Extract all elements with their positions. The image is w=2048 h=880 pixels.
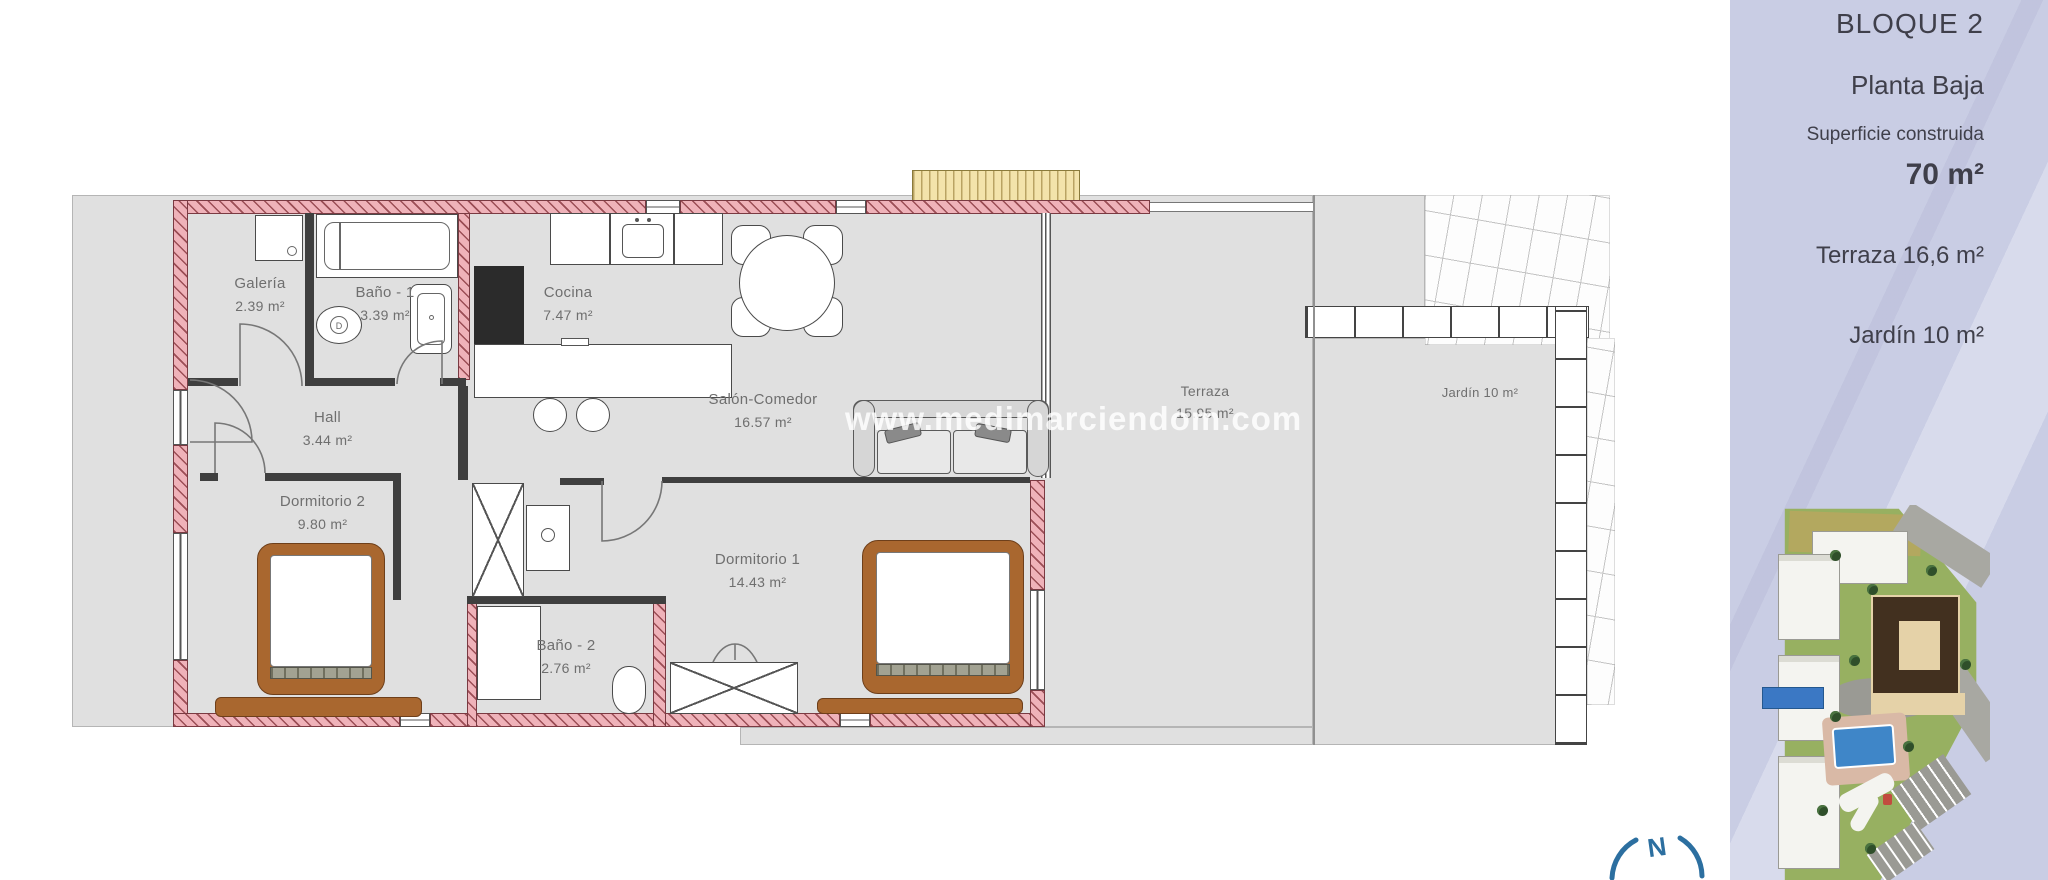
- block-title: BLOQUE 2: [1836, 8, 1984, 40]
- floorplan-page: D: [0, 0, 2048, 880]
- wall-right: [1030, 480, 1045, 590]
- wall-top: [866, 200, 1150, 214]
- wall-bottom: [870, 713, 1045, 727]
- wall-left: [173, 445, 188, 533]
- watermark: www.medimarciendom.com: [845, 400, 1302, 438]
- room-label-dorm2: Dormitorio 29.80 m²: [255, 490, 390, 537]
- bed-bench-dorm1: [817, 698, 1023, 714]
- stool: [533, 398, 567, 432]
- terrace-area-value: Terraza 16,6 m²: [1816, 242, 1984, 270]
- wardrobe: [472, 483, 524, 597]
- kitchen-counter: [674, 213, 723, 265]
- dresser-dorm1: [670, 662, 798, 714]
- room-label-galeria: Galería2.39 m²: [210, 272, 310, 319]
- wall-bath1-bottom: [440, 378, 466, 386]
- room-label-bano1: Baño - 13.39 m²: [335, 281, 435, 328]
- garden-fence-right: [1555, 306, 1587, 745]
- built-area-label: Superficie construida: [1807, 124, 1984, 146]
- palm-tree: [1849, 655, 1860, 666]
- room-label-salon: Salón-Comedor16.57 m²: [688, 388, 838, 435]
- site-deck: [1871, 693, 1964, 716]
- room-label-bano2: Baño - 22.76 m²: [518, 634, 614, 681]
- svg-text:N: N: [1645, 831, 1668, 863]
- partition-bath1-kitchen: [458, 213, 470, 380]
- floor-title: Planta Baja: [1851, 70, 1984, 101]
- terrace-top-rail: [1150, 202, 1313, 212]
- window-left: [173, 533, 188, 660]
- room-label-dorm1: Dormitorio 114.43 m²: [690, 548, 825, 595]
- bathtub: [316, 214, 458, 278]
- boiler-cabinet: [526, 505, 570, 571]
- mattress-dorm2: [270, 555, 372, 667]
- bed-base-dorm2: [270, 667, 372, 679]
- stool: [576, 398, 610, 432]
- window-bottom-2: [840, 713, 870, 727]
- room-label-jardin: Jardín 10 m²: [1405, 383, 1555, 403]
- wall-dorm2-top: [200, 473, 218, 481]
- washing-machine: [255, 215, 303, 261]
- toilet-bath2: [612, 666, 646, 714]
- wall-bath1-bottom: [305, 378, 395, 386]
- wall-right: [1030, 690, 1045, 727]
- terrace-awning: [912, 170, 1080, 202]
- wall-hall-right: [458, 386, 468, 480]
- palm-tree: [1867, 584, 1878, 595]
- unit-location-marker: [1762, 687, 1824, 710]
- site-building-left-1: [1778, 554, 1840, 640]
- wall-bath2-top: [467, 596, 666, 604]
- wall-left: [173, 200, 188, 390]
- palm-tree: [1817, 805, 1828, 816]
- partition-bath2-left: [467, 596, 477, 727]
- room-label-hall: Hall3.44 m²: [280, 406, 375, 453]
- brick-paving-strip: [1587, 338, 1615, 705]
- kitchen-counter: [550, 213, 610, 265]
- window-top-1: [646, 200, 680, 214]
- wall-galeria-bottom: [188, 378, 238, 386]
- window-right: [1030, 590, 1045, 690]
- bed-bench-dorm2: [215, 697, 422, 717]
- mattress-dorm1: [876, 552, 1010, 664]
- site-car: [1883, 794, 1892, 805]
- wall-salon-bottom: [662, 477, 1030, 483]
- site-plan-map: [1762, 505, 1990, 880]
- wall-bottom: [430, 713, 840, 727]
- garden-fence-top: [1305, 306, 1589, 338]
- built-area-value: 70 m²: [1906, 158, 1984, 192]
- wall-dorm1-top: [560, 478, 604, 485]
- window-top-2: [836, 200, 866, 214]
- palm-tree: [1865, 843, 1876, 854]
- garden-area-value: Jardín 10 m²: [1849, 322, 1984, 350]
- terrace-boundary-line: [1313, 195, 1315, 745]
- floor-slab-lower: [740, 727, 1313, 745]
- wall-top: [173, 200, 646, 214]
- site-pool: [1831, 724, 1895, 769]
- wall-dorm2-right: [393, 473, 401, 600]
- wall-top: [680, 200, 836, 214]
- wall-dorm2-top: [265, 473, 393, 481]
- bed-base-dorm1: [876, 664, 1010, 676]
- room-label-cocina: Cocina7.47 m²: [518, 281, 618, 328]
- site-courtyard: [1899, 621, 1940, 670]
- compass-icon: N: [1600, 824, 1720, 880]
- dining-table: [739, 235, 835, 331]
- fridge: [474, 266, 524, 344]
- entrance-door-gap: [173, 390, 188, 445]
- partition-bath2-right: [653, 596, 666, 727]
- kitchen-sink-unit: [610, 213, 674, 265]
